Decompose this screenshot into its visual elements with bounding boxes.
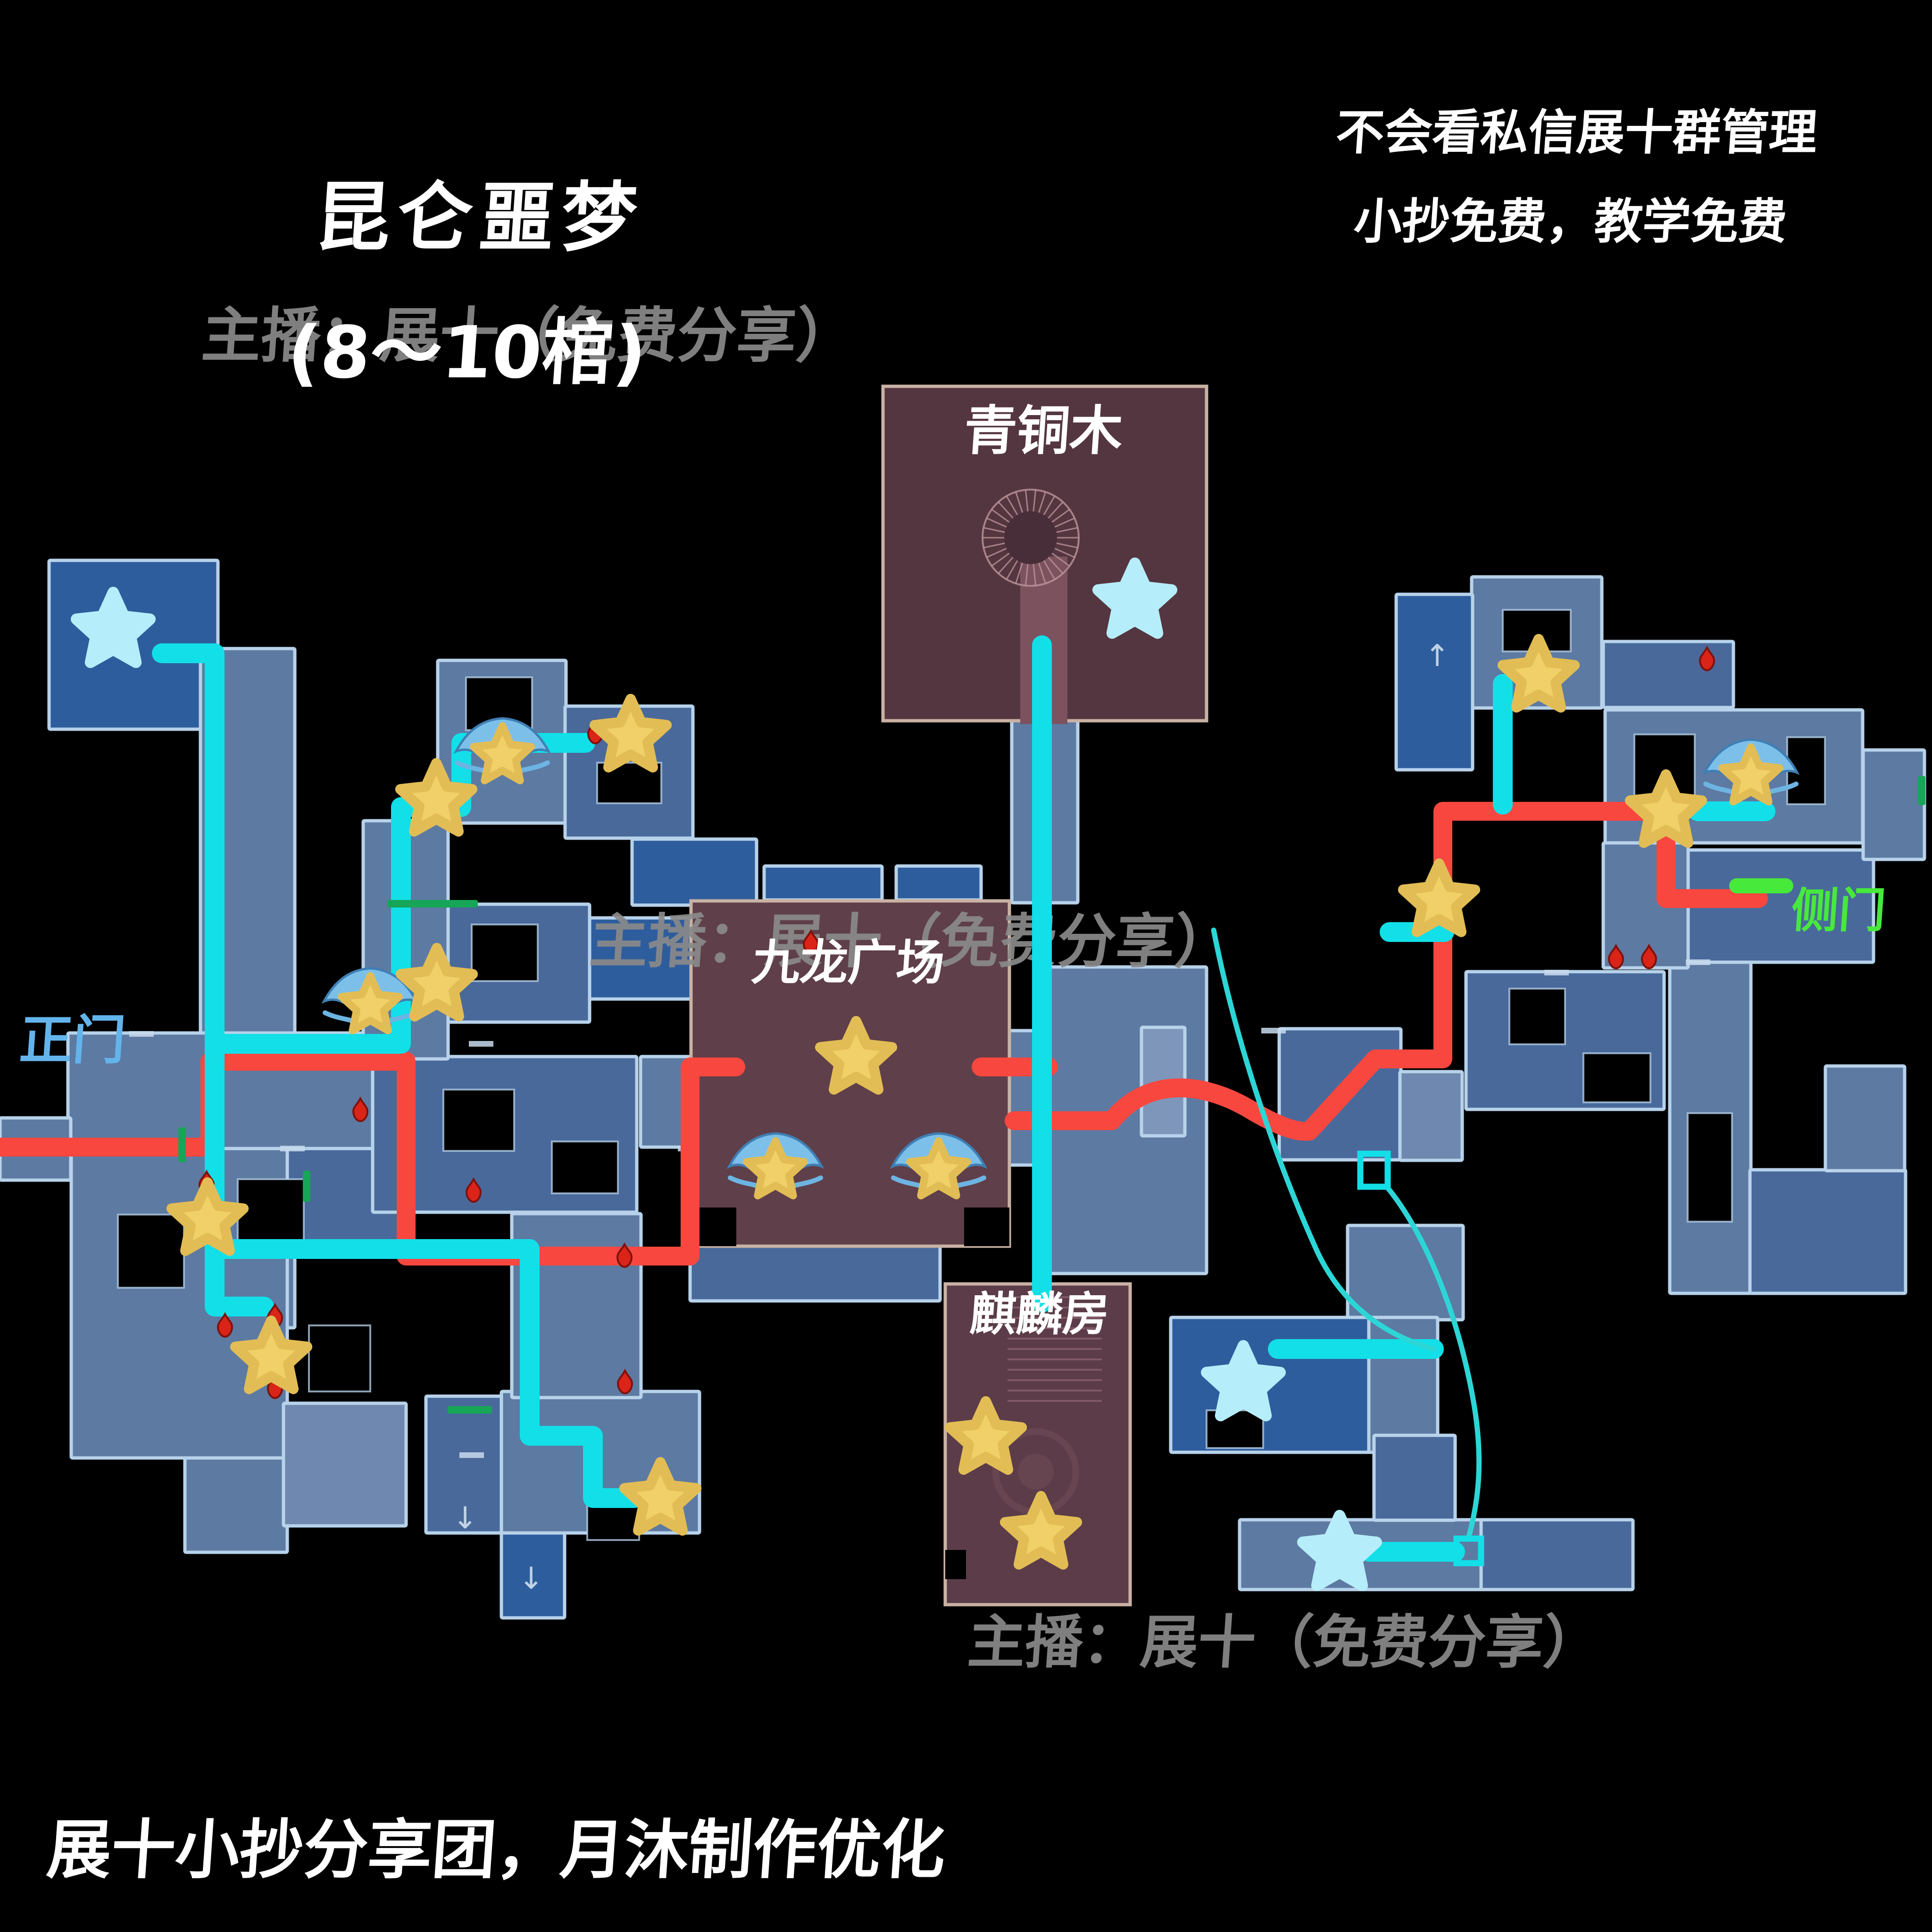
watermark-bottom: 主播：展十（免费分享） xyxy=(966,1612,1603,1673)
text-layer: 昆仑噩梦 (8～10棺) 不会看私信展十群管理 小抄免费，教学免费 青铜木 九龙… xyxy=(0,0,1932,1932)
map-poster: 主播：展十（免费分享） 主播：展十（免费分享） ↑↓↓ 昆仑噩梦 (8～10棺)… xyxy=(0,0,1932,1932)
label-bronze-tree: 青铜木 xyxy=(962,404,1124,459)
notice-line-2: 小抄免费，教学免费 xyxy=(1328,197,1813,247)
label-dragon-plaza: 九龙广场 xyxy=(750,938,946,988)
notice-line-1: 不会看私信展十群管理 xyxy=(1334,108,1819,158)
page-title: 昆仑噩梦 xyxy=(312,178,646,258)
notice-block: 不会看私信展十群管理 小抄免费，教学免费 xyxy=(1328,108,1819,247)
credit-line: 展十小抄分享团，月沐制作优化 xyxy=(45,1817,948,1884)
label-main-gate: 正门 xyxy=(18,1013,127,1069)
label-qilin-room: 麒麟房 xyxy=(968,1291,1110,1339)
page-subtitle: (8～10棺) xyxy=(285,315,649,391)
label-side-gate: 侧门 xyxy=(1790,886,1887,935)
